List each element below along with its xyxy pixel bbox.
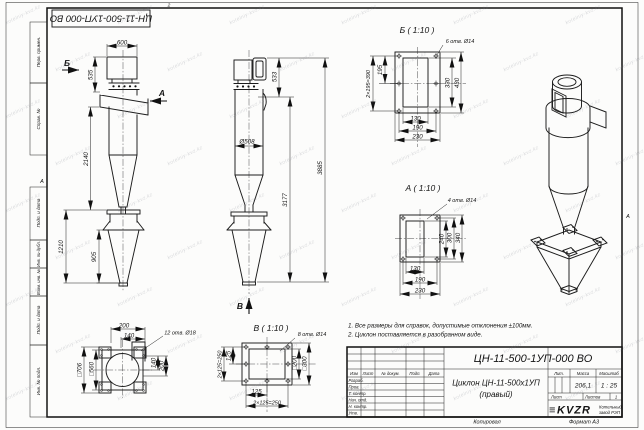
detail-v-holes-label: 8 отв. Ø14 [298,332,327,338]
detail-a: А ( 1:10 ) 4 отв. Ø14 240 300 340 130 19… [395,183,476,299]
detail-b-holes-label: 6 отв. Ø14 [446,39,475,45]
frame-label-inv-podl: Инв. № подл. [36,367,41,396]
tb-row-nkontr: Н. контр. [349,404,368,409]
company-logo-bars: ≡ [549,405,555,417]
title-block: ЦН-11-500-1УП-000 ВО Циклон ЦН-11-500х1У… [347,347,622,426]
dim-b-195: 195 [377,64,384,75]
dim-b-390: 2×195=390 [366,69,372,99]
dim-plan-140-right: 140 [150,357,157,368]
tb-name-line2: (правый) [479,390,512,399]
frame-label-vzam-inv: Взам. инв. № [36,269,41,295]
tb-sheets-value: 1 [615,395,617,400]
company-name-line1: Котельный [599,405,622,410]
dim-side-3177: 3177 [282,193,289,207]
company-logo: KVZR [557,405,591,417]
dim-front-535: 535 [87,69,94,80]
dim-v-125-bottom: 125 [251,388,262,395]
zone-letter-right: А [625,214,630,220]
detail-b: Б ( 1:10 ) 6 отв. Ø14 195 2×195=390 330 … [366,25,474,147]
dim-plan-560: □560 [88,361,95,376]
dim-plan-200-top: 200 [118,322,130,329]
tb-row-tkontr: Т. контр. [349,391,367,396]
dim-v-200: □200 [291,355,298,370]
dim-a-230: 230 [414,287,426,294]
tb-mass-label: Масса [577,371,590,376]
zone-letter-left: А [39,179,44,185]
dim-a-240: 240 [438,233,445,245]
view-side: Ø508 533 3177 3885 В [227,50,329,314]
zone-number-top: 2 [167,3,171,9]
top-stamp-doc-number: ЦН-11-500-1УП-000 ВО [49,13,152,24]
dim-front-2140: 2140 [83,152,90,167]
company-name-line2: завод РЭП [598,410,621,415]
frame-label-inv-dubl: Инв. № дубл. [36,241,41,267]
dim-side-533: 533 [271,71,278,82]
dim-b-430: 430 [454,77,461,88]
dim-b-230: 230 [411,133,423,140]
tb-col-izm: Изм [350,371,358,376]
tb-scale-label: Масштаб [599,371,619,376]
view-plan: 12 отв. Ø18 200 140 140 200 □706 □560 [76,322,196,398]
detail-a-holes-label: 4 отв. Ø14 [448,198,477,204]
frame-label-podp-data-2: Подп. и дата [36,305,41,334]
view-front: Б А 600 535 2140 1210 905 [58,39,167,292]
dim-a-300: 300 [447,232,454,243]
frame-label-sprav-no: Справ. № [36,109,41,130]
tb-col-date: Дата [427,371,440,376]
dim-plan-200-right: 200 [158,360,165,372]
tb-sheet-label: Лист [550,395,562,400]
frame-label-perv-primen: Перв. примен. [36,37,41,68]
format-label: Формат А3 [569,420,600,426]
dim-b-130: 130 [410,115,421,122]
dim-v-250-bottom: 2×125=250 [252,400,282,406]
note-line-1: 1. Все размеры для справок, допустимые о… [348,323,533,330]
tb-lit-label: Лит. [553,371,564,376]
dim-b-190: 190 [412,124,423,131]
dim-a-130: 130 [410,265,421,272]
dim-front-905: 905 [91,251,98,262]
drawing-canvas: Перв. примен. Справ. № Подп. и дата Инв.… [0,0,644,430]
tb-scale-value: 1 : 25 [601,383,618,390]
detail-v: В ( 1:10 ) 8 отв. Ø14 125 2×125=250 □200… [217,323,326,412]
front-arrow-a-label: А [158,88,165,98]
detail-b-title: Б ( 1:10 ) [400,25,435,35]
tb-mass-value: 206,1 [574,383,592,390]
detail-a-title: А ( 1:10 ) [405,183,441,193]
tb-doc-number: ЦН-11-500-1УП-000 ВО [474,353,593,365]
dim-a-340: 340 [455,232,462,243]
dim-side-diameter: Ø508 [238,139,255,146]
front-arrow-b-label: Б [64,58,70,68]
tb-row-razrab: Разраб. [349,378,364,383]
tb-col-doc: № докум. [381,371,399,376]
dim-v-300: □300 [301,356,308,371]
tb-col-list: Лист [362,371,374,376]
dim-a-190: 190 [415,276,426,283]
dim-front-600: 600 [117,39,128,46]
tb-row-prov: Пров. [349,384,360,389]
side-arrow-v-label: В [237,301,243,311]
dim-v-125-left: 125 [225,350,232,361]
frame-label-podp-data-1: Подп. и дата [36,198,41,227]
tb-sheets-label: Листов [584,395,601,400]
dim-plan-140-top: 140 [124,332,135,339]
notes: 1. Все размеры для справок, допустимые о… [347,323,533,339]
drawing-sheet: Перв. примен. Справ. № Подп. и дата Инв.… [0,0,644,430]
tb-name-line1: Циклон ЦН-11-500х1УП [452,379,540,388]
tb-row-nachotd: Нач. отд. [349,397,368,402]
dim-v-250-left: 2×125=250 [217,350,223,380]
dim-front-1210: 1210 [58,240,65,254]
tb-row-utv: Утв. [349,410,359,415]
note-line-2: 2. Циклон поставляется в разобранном вид… [347,332,482,339]
tb-col-sign: Подп. [409,371,420,376]
dim-b-330: 330 [445,77,452,88]
dim-plan-706: □706 [76,362,83,377]
plan-holes-label: 12 отв. Ø18 [164,331,197,337]
copied-label: Копировал [473,420,500,426]
detail-v-title: В ( 1:10 ) [254,323,289,333]
render-3d-cyclone [531,75,607,295]
dim-side-3885: 3885 [317,161,324,175]
